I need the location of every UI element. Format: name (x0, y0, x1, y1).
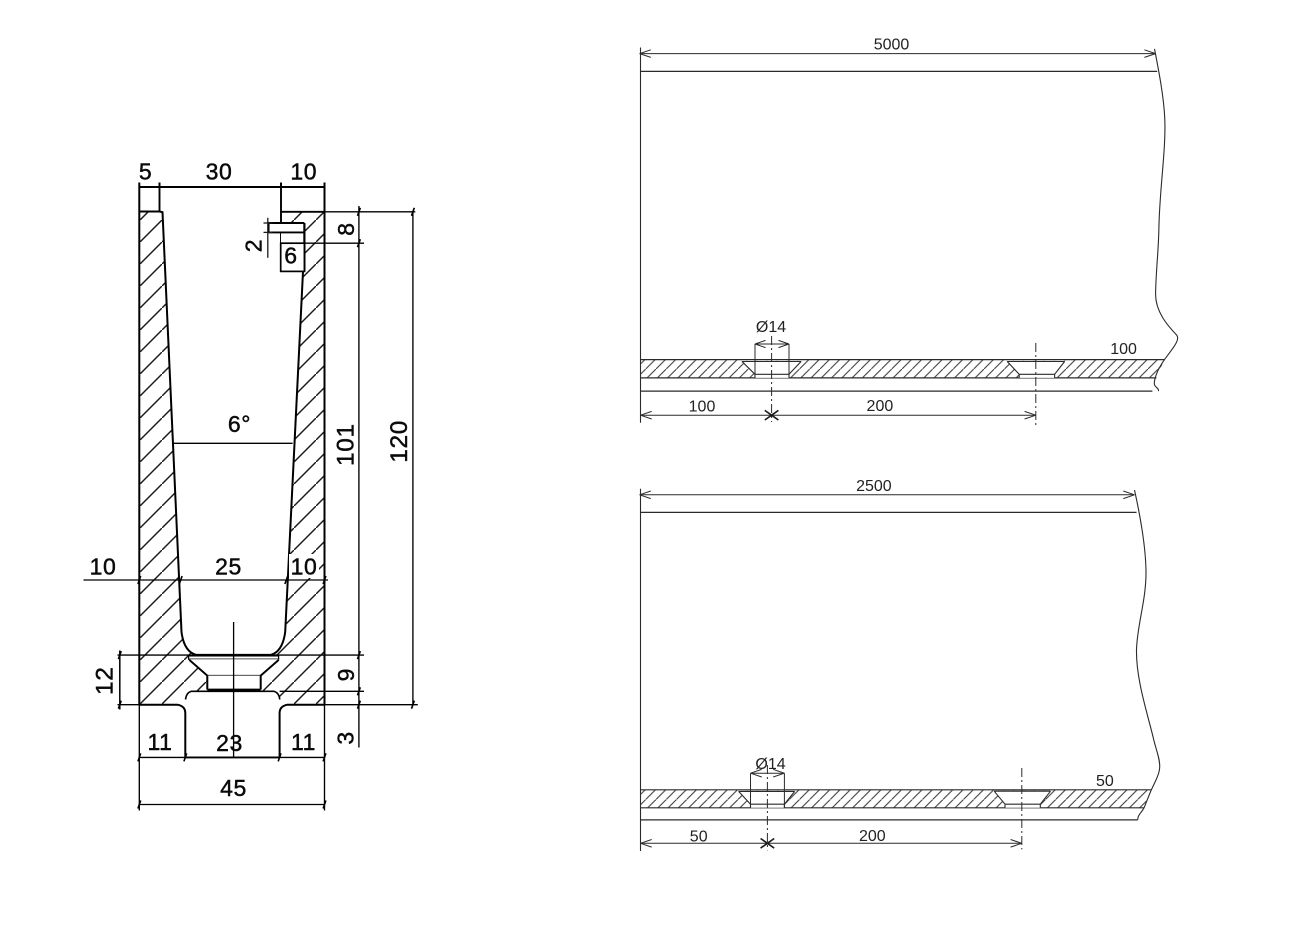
svg-text:45: 45 (220, 775, 247, 801)
svg-text:50: 50 (1096, 773, 1114, 790)
svg-text:2: 2 (241, 239, 267, 252)
svg-text:50: 50 (690, 829, 708, 846)
svg-text:12: 12 (91, 667, 118, 695)
svg-text:23: 23 (216, 730, 243, 756)
svg-text:3: 3 (332, 731, 358, 744)
svg-text:101: 101 (332, 423, 359, 466)
svg-text:10: 10 (90, 554, 117, 580)
svg-text:11: 11 (291, 729, 316, 755)
svg-text:11: 11 (147, 729, 172, 755)
svg-text:100: 100 (1110, 341, 1137, 358)
svg-text:30: 30 (206, 159, 233, 185)
svg-text:6: 6 (284, 243, 297, 269)
svg-text:100: 100 (689, 399, 716, 416)
svg-text:5: 5 (139, 159, 152, 185)
svg-text:200: 200 (867, 398, 894, 415)
svg-text:5000: 5000 (874, 37, 910, 54)
svg-text:120: 120 (386, 420, 413, 463)
svg-text:Ø14: Ø14 (756, 319, 786, 336)
svg-text:25: 25 (215, 554, 242, 580)
svg-text:8: 8 (333, 222, 359, 235)
svg-text:2500: 2500 (856, 478, 892, 495)
svg-text:10: 10 (291, 554, 318, 580)
svg-text:Ø14: Ø14 (755, 756, 785, 773)
svg-text:6°: 6° (228, 411, 251, 437)
svg-text:10: 10 (290, 159, 317, 185)
svg-text:9: 9 (333, 668, 359, 681)
svg-text:200: 200 (859, 828, 886, 845)
